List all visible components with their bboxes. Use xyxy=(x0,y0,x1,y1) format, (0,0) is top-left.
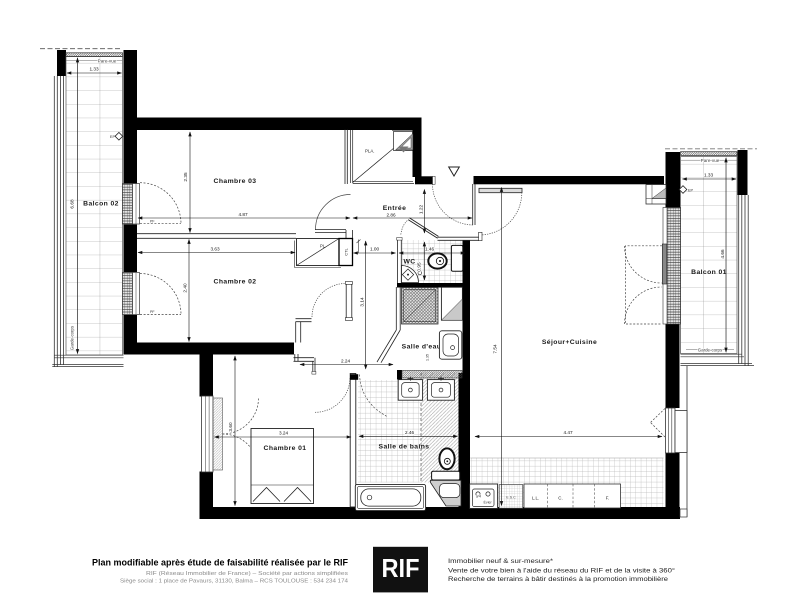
svg-text:Vente de votre bien à l'aide d: Vente de votre bien à l'aide du réseau d… xyxy=(448,567,675,575)
svg-text:E.S.C: E.S.C xyxy=(506,496,516,500)
svg-text:3.24: 3.24 xyxy=(279,431,289,436)
svg-text:1.33: 1.33 xyxy=(89,67,99,72)
svg-text:PLA.: PLA. xyxy=(365,149,375,154)
svg-text:Chambre 03: Chambre 03 xyxy=(214,178,257,185)
svg-text:Séjour+Cuisine: Séjour+Cuisine xyxy=(542,339,597,346)
svg-text:Plan modifiable après étude de: Plan modifiable après étude de faisabili… xyxy=(92,558,348,569)
svg-text:3.60: 3.60 xyxy=(228,422,233,432)
svg-text:1.22: 1.22 xyxy=(418,205,423,215)
svg-text:Balcon 01: Balcon 01 xyxy=(691,269,727,276)
svg-text:3.63: 3.63 xyxy=(210,246,220,251)
svg-text:Immobilier neuf & sur-mesure*: Immobilier neuf & sur-mesure* xyxy=(448,558,554,565)
svg-text:1.35: 1.35 xyxy=(426,354,430,361)
svg-text:2.24: 2.24 xyxy=(341,358,351,363)
svg-text:Entrée: Entrée xyxy=(383,205,407,212)
svg-text:a 4: a 4 xyxy=(476,495,481,499)
svg-text:4.47: 4.47 xyxy=(563,430,573,435)
svg-text:Évier: Évier xyxy=(484,500,493,505)
svg-text:F.: F. xyxy=(606,496,609,501)
svg-text:PF: PF xyxy=(150,310,155,314)
svg-text:Siège social : 1 place de Pava: Siège social : 1 place de Pavaurs, 31130… xyxy=(120,578,349,584)
svg-text:Recherche de terrains à bâtir: Recherche de terrains à bâtir destinés à… xyxy=(448,576,668,583)
svg-text:Pare-vue: Pare-vue xyxy=(701,158,720,163)
svg-text:CTL: CTL xyxy=(344,247,349,255)
svg-text:RIF: RIF xyxy=(382,553,420,583)
svg-text:7.54: 7.54 xyxy=(493,344,498,354)
svg-text:3.14: 3.14 xyxy=(359,297,364,307)
svg-text:PL.: PL. xyxy=(320,244,326,249)
svg-text:RIF (Réseau Immobilier de Fran: RIF (Réseau Immobilier de France) – Soci… xyxy=(146,571,348,577)
svg-text:2.40: 2.40 xyxy=(182,283,187,293)
svg-text:L.L.: L.L. xyxy=(532,496,539,501)
svg-text:C.: C. xyxy=(558,496,562,501)
svg-text:WC: WC xyxy=(403,259,415,266)
svg-text:Garde-corps: Garde-corps xyxy=(698,348,723,353)
svg-text:1.00: 1.00 xyxy=(370,247,380,252)
svg-text:PF: PF xyxy=(150,219,155,223)
svg-text:2.86: 2.86 xyxy=(386,212,396,217)
svg-text:Chambre 02: Chambre 02 xyxy=(214,279,257,286)
svg-text:2.35: 2.35 xyxy=(183,172,188,182)
svg-text:EP: EP xyxy=(110,135,116,139)
svg-text:1.33: 1.33 xyxy=(704,173,714,178)
svg-text:Garde-corps: Garde-corps xyxy=(70,325,75,350)
svg-text:Salle d'eau: Salle d'eau xyxy=(402,344,442,351)
svg-text:6.68: 6.68 xyxy=(70,199,75,209)
svg-text:0.95: 0.95 xyxy=(416,262,421,272)
svg-text:Balcon 02: Balcon 02 xyxy=(83,201,119,208)
svg-text:Chambre 01: Chambre 01 xyxy=(264,445,307,452)
svg-text:Salle de bains: Salle de bains xyxy=(379,444,430,451)
svg-text:1.46: 1.46 xyxy=(425,247,435,252)
svg-text:2.46: 2.46 xyxy=(405,430,415,435)
svg-text:Pare-vue: Pare-vue xyxy=(98,58,117,63)
svg-text:4.66: 4.66 xyxy=(720,249,725,259)
svg-text:EP: EP xyxy=(688,188,694,192)
svg-text:4.87: 4.87 xyxy=(238,212,248,217)
